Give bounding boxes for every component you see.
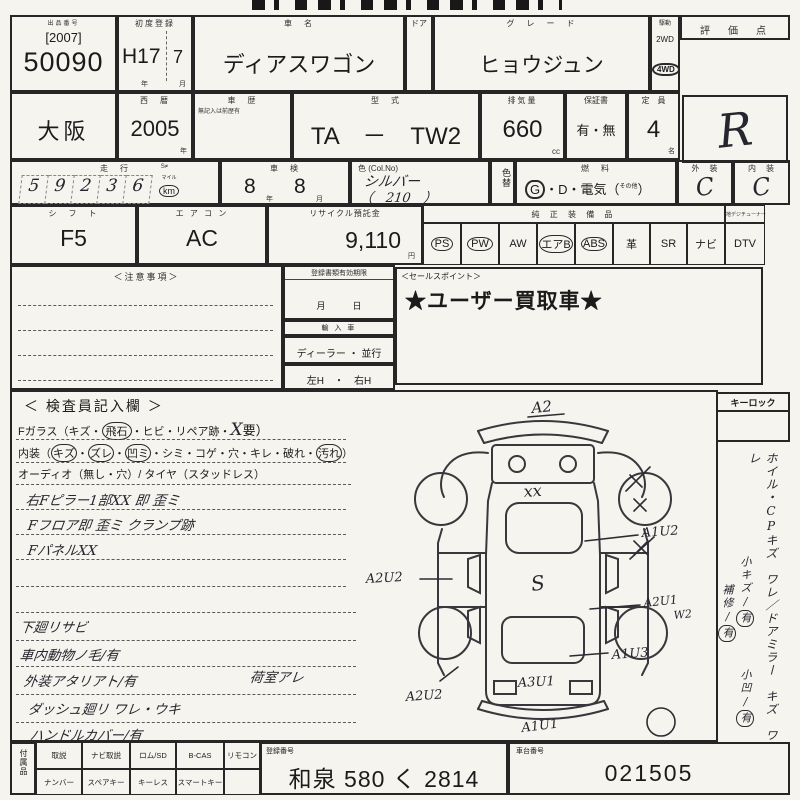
sales-value: ★ユーザー買取車★: [405, 285, 603, 315]
acc-remote: リモコン: [224, 742, 260, 769]
shaken-cell: 車 検 8 年 8 月: [220, 160, 350, 205]
fuel-other: その他: [620, 184, 638, 190]
int-c3: 凹ミ: [125, 444, 151, 462]
shaken-label: 車 検: [222, 163, 348, 174]
inspector-line: [16, 559, 346, 560]
capacity-value: 4: [629, 116, 678, 144]
aircon-cell: エ ア コ ン AC: [137, 205, 267, 265]
first-reg-cell: 初度登録 H17 7 年 月: [117, 15, 193, 92]
region-cell: 大阪: [10, 92, 117, 160]
inspector-line: [16, 612, 356, 613]
equip-aw: AW: [499, 223, 537, 265]
acc-torisetsu: 取説: [36, 742, 82, 769]
side-sub1-label: 小キズ/: [739, 556, 752, 610]
drive-4wd: 4WD: [652, 63, 680, 76]
fuel-label: 燃 料: [517, 163, 675, 174]
mark-right2: A2U1: [642, 592, 678, 610]
door-label: ドア: [407, 18, 431, 29]
lot-label: 出品番号: [12, 18, 115, 27]
audio-line: オーディオ（無し・穴）/ タイヤ（スタッドレス）: [18, 466, 265, 482]
tuner-header: 地デジチューナー: [725, 205, 765, 223]
inspector-title: ＜ 検査員記入欄 ＞: [24, 396, 164, 416]
leader-a1u2: [585, 535, 638, 541]
score-label: 評 価 点: [682, 22, 788, 37]
history-cell: 車 歴 無記入は前歴有: [193, 92, 292, 160]
lot-cell: 出品番号 [2007] 50090: [10, 15, 117, 92]
mark-center: S: [529, 570, 546, 596]
right-window-1: [606, 555, 618, 593]
side-sub1: 小キズ/有: [739, 556, 752, 627]
registration-value: 和泉 580 く 2814: [262, 760, 506, 794]
registration-cell: 登録番号 和泉 580 く 2814: [260, 742, 508, 795]
mileage-digit: 9: [45, 175, 75, 204]
shift-cell: シ フ ト F5: [10, 205, 137, 265]
shaken-month-unit: 月: [316, 194, 323, 204]
shaken-month: 8: [294, 175, 306, 199]
rear-left-wheel: [419, 607, 471, 659]
side-sub2: 小凹/有: [739, 669, 752, 727]
keylock-empty-box: [716, 412, 790, 442]
accessories-label-cell: 付属品: [10, 742, 36, 795]
side-sub3-mark: 有: [718, 625, 736, 642]
sales-label: ＜セールスポイント＞: [401, 271, 481, 282]
cab-detail-left: [509, 456, 525, 472]
front-bumper: [478, 421, 608, 431]
fuel-value: G・D・電気（その他）: [525, 179, 651, 199]
import-cell: 輸 入 車: [283, 320, 395, 336]
cargo-note: 荷室アレ: [249, 666, 305, 686]
color-code: （ 210 ）: [359, 187, 438, 206]
fuel-cell: 燃 料 G・D・電気（その他）: [515, 160, 677, 205]
handle-label: 左H ・ 右H: [285, 372, 393, 387]
mark-left2: A2U2: [404, 687, 443, 705]
history-note: 無記入は前歴有: [198, 106, 240, 115]
color-change-label: 色替: [492, 168, 513, 188]
inspector-note: 下廻リサビ: [19, 616, 89, 636]
mark-hood: xx: [523, 481, 542, 501]
west-year-cell: 西 暦 2005 年: [117, 92, 193, 160]
tuner-label: 地デジチューナー: [726, 211, 764, 218]
recycle-value: 9,110: [269, 227, 421, 254]
equip-dtv: DTV: [725, 223, 765, 265]
first-reg-month-unit: 月: [179, 79, 186, 89]
int-s1: ・: [77, 448, 88, 460]
shaken-year-unit: 年: [266, 194, 273, 204]
region-value: 大阪: [12, 114, 115, 146]
model-value: TA － TW2: [294, 116, 478, 151]
fuel-close: ）: [638, 182, 651, 197]
mileage-digit: 5: [18, 175, 49, 204]
first-reg-year-unit: 年: [141, 79, 148, 89]
mark-right1: A1U2: [640, 523, 679, 541]
accessories-label: 付属品: [18, 749, 29, 776]
int-mid: ・シミ・コゲ・穴・キレ・破れ・: [151, 448, 316, 460]
equip-abs: ABS: [575, 223, 613, 265]
drive-label: 駆動: [652, 18, 678, 27]
inspector-line: [16, 694, 356, 695]
leader-a1u3: [570, 653, 608, 656]
displacement-value: 660: [482, 116, 563, 144]
mileage-cell: 走 行 S≠ 5 9 2 3 6 マイル km: [10, 160, 220, 205]
score-header-cell: 評 価 点: [680, 15, 790, 40]
color-change-cell: 色替: [490, 160, 515, 205]
equip-sr: SR: [650, 223, 687, 265]
acc-rom-sd: ロム/SD: [130, 742, 176, 769]
capacity-unit: 名: [668, 146, 675, 156]
first-reg-label: 初度登録: [119, 18, 191, 29]
side-sub-notes: 小キズ/有 小凹/有 補修/有: [718, 556, 754, 752]
glass-middle: ・ヒビ・リペア跡・: [132, 426, 231, 438]
car-diagram: A2 xx S A1U2 A2U2 A2U1 W2 A1U3 A3U1 A2U2…: [352, 395, 722, 745]
capacity-label: 定 員: [629, 95, 678, 106]
glass-mark: X: [231, 420, 243, 440]
side-sub2-label: 小凹/: [739, 669, 752, 710]
capacity-cell: 定 員 4 名: [627, 92, 680, 160]
glass-circled: 飛石: [102, 422, 132, 440]
color-cell: 色 (Col.No) シルバー （ 210 ）: [350, 160, 490, 205]
auction-sheet: 出品番号 [2007] 50090 初度登録 H17 7 年 月 車 名 ディア…: [0, 0, 800, 800]
dealer-cell: ディーラー ・ 並行: [283, 336, 395, 364]
cropped-title-fragment: [252, 0, 562, 10]
inspector-note: Fフロア即 歪ミ クランプ跡: [27, 514, 196, 534]
lot-number: 50090: [12, 47, 115, 78]
mark-right2b: W2: [673, 607, 693, 622]
acc-bcas: B-CAS: [176, 742, 224, 769]
aircon-value: AC: [139, 225, 265, 252]
mileage-digit: 2: [71, 175, 101, 204]
inspector-line: [16, 534, 346, 535]
exterior-value: C: [677, 170, 732, 205]
inspector-line: [16, 509, 346, 510]
interior-value: C: [733, 169, 789, 204]
equip-pw: PW: [461, 223, 499, 265]
equipment-header: 純 正 装 備 品: [423, 205, 725, 223]
inspector-note: FパネルXX: [27, 539, 99, 559]
notes-line: [18, 355, 273, 356]
history-label: 車 歴: [195, 95, 290, 106]
notes-line: [18, 330, 273, 331]
tail-light-right: [570, 681, 592, 694]
shaken-year: 8: [244, 175, 256, 199]
acc-empty: [224, 769, 260, 795]
mileage-digit: 3: [97, 175, 127, 204]
grade-cell: グ レ ー ド ヒョウジュン: [433, 15, 650, 92]
displacement-unit: cc: [552, 147, 560, 156]
equip-navi: ナビ: [687, 223, 725, 265]
inspector-note: ハンドルカバー/有: [29, 724, 144, 744]
chassis-cell: 車台番号 021505: [508, 742, 790, 795]
door-cell: ドア: [405, 15, 433, 92]
displacement-cell: 排気量 660 cc: [480, 92, 565, 160]
side-sub3: 補修/有: [721, 584, 734, 642]
inspector-note: 外装アタリアト/有: [23, 670, 138, 690]
side-sub1-mark: 有: [736, 610, 754, 627]
west-year-unit: 年: [180, 146, 187, 156]
mileage-label: 走 行: [12, 163, 218, 174]
warranty-cell: 保証書 有・無: [565, 92, 627, 160]
car-name-cell: 車 名 ディアスワゴン: [193, 15, 405, 92]
notes-line: [18, 305, 273, 306]
mark-bottom: A1U1: [520, 717, 559, 737]
int-s2: ・: [114, 448, 125, 460]
windshield: [506, 503, 582, 553]
int-c1: キズ: [51, 444, 77, 462]
mileage-unit-top: マイル: [154, 174, 184, 181]
grade-label: グ レ ー ド: [435, 18, 648, 29]
diagram-labels: A2 xx S A1U2 A2U2 A2U1 W2 A1U3 A3U1 A2U2…: [364, 397, 692, 736]
equip-pw-label: PW: [467, 237, 493, 251]
grade-value: ヒョウジュン: [435, 49, 648, 79]
fuel-g: G: [525, 180, 545, 199]
mileage-unit-badge: マイル km: [154, 174, 184, 199]
inspector-line: [16, 484, 351, 485]
validity-cell: 登録書類有効期限 月 日: [283, 265, 395, 320]
drive-cell: 駆動 2WD 4WD: [650, 15, 680, 92]
sales-box: ＜セールスポイント＞ ★ユーザー買取車★: [395, 267, 763, 385]
front-bumper-inner: [484, 435, 602, 444]
notes-box: ＜注意事項＞: [10, 265, 283, 390]
interior-cell: 内 装 C: [733, 160, 790, 205]
mileage-digits: 5 9 2 3 6: [20, 175, 151, 204]
cab-roof: [492, 445, 594, 483]
inspector-line: [16, 439, 346, 440]
notes-label: ＜注意事項＞: [12, 270, 281, 283]
acc-keyless: キーレス: [130, 769, 176, 795]
mark-left1: A2U2: [364, 570, 403, 587]
keylock-label: キーロック: [718, 396, 788, 409]
model-label: 型 式: [294, 95, 478, 106]
score-value: R: [681, 98, 788, 162]
import-label: 輸 入 車: [285, 323, 393, 333]
first-reg-divider: [166, 31, 167, 81]
tail-light-left: [494, 681, 516, 694]
mark-right3: A1U3: [610, 645, 649, 663]
inspector-line: [16, 586, 346, 587]
first-reg-month: 7: [173, 47, 183, 68]
mileage-digit: 6: [123, 175, 153, 204]
equip-aw-label: AW: [509, 238, 526, 250]
side-sub2-mark: 有: [736, 710, 754, 727]
inspector-note: 右Fピラー1部XX 即 歪ミ: [25, 489, 181, 509]
car-name-value: ディアスワゴン: [195, 47, 403, 79]
equip-leather: 革: [613, 223, 650, 265]
validity-label: 登録書類有効期限: [285, 268, 393, 280]
shift-label: シ フ ト: [12, 208, 135, 219]
acc-sparekey: スペアキー: [82, 769, 130, 795]
model-cell: 型 式 TA － TW2: [292, 92, 480, 160]
equip-abs-label: ABS: [581, 237, 607, 251]
cab-detail-right: [560, 456, 576, 472]
mark-front: A2: [529, 397, 553, 417]
left-rail: [438, 529, 444, 675]
mark-rear: A3U1: [516, 674, 555, 691]
warranty-label: 保証書: [567, 95, 625, 106]
warranty-value: 有・無: [567, 120, 625, 139]
acc-navi-torisetsu: ナビ取説: [82, 742, 130, 769]
interior-line: 内装（キズ・ズレ・凹ミ・シミ・コゲ・穴・キレ・破れ・汚れ）: [18, 444, 353, 462]
equip-airbag-label: エアB: [539, 235, 572, 253]
lot-year: [2007]: [12, 30, 115, 45]
glass-line: Fガラス（キズ・飛石・ヒビ・リペア跡・X要）: [18, 420, 269, 440]
equipment-row: PS PW AW エアB ABS 革 SR ナビ DTV: [423, 223, 765, 265]
first-reg-year: H17: [122, 45, 161, 69]
fuel-rest: ・D・電気（: [545, 182, 619, 197]
equip-airbag: エアB: [537, 223, 575, 265]
inspector-line: [16, 462, 346, 463]
west-year-label: 西 暦: [119, 95, 191, 106]
left-window-1: [468, 555, 480, 593]
displacement-label: 排気量: [482, 95, 563, 106]
keylock-box: キーロック: [716, 392, 790, 412]
chassis-label: 車台番号: [516, 746, 544, 756]
handle-cell: 左H ・ 右H: [283, 364, 395, 390]
recycle-cell: リサイクル預託金 9,110 円: [267, 205, 423, 265]
shift-value: F5: [12, 225, 135, 252]
west-year-value: 2005: [119, 116, 191, 142]
inspector-line: [16, 640, 356, 641]
validity-units: 月 日: [285, 299, 393, 312]
equip-leather-label: 革: [626, 236, 637, 252]
equip-ps-label: PS: [431, 237, 454, 251]
car-name-label: 車 名: [195, 18, 403, 29]
recycle-label: リサイクル預託金: [269, 208, 421, 219]
equip-dtv-label: DTV: [734, 238, 756, 250]
drive-4wd-wrap: 4WD: [652, 63, 678, 76]
glass-suffix: 要）: [243, 423, 269, 438]
x-mark: [634, 499, 646, 511]
chassis-value: 021505: [510, 760, 788, 787]
exterior-cell: 外 装 C: [677, 160, 733, 205]
acc-smartkey: スマートキー: [176, 769, 224, 795]
drive-2wd: 2WD: [652, 35, 678, 44]
mileage-flag: S≠: [161, 164, 168, 170]
int-prefix: 内装（: [18, 448, 51, 460]
aircon-label: エ ア コ ン: [139, 208, 265, 219]
inspector-note: 車内動物ノ毛/有: [19, 644, 121, 664]
empty-circle: [647, 708, 675, 736]
glass-prefix: Fガラス（キズ・: [18, 426, 102, 438]
side-sub3-label: 補修/: [721, 584, 734, 625]
inspector-note: ダッシュ廻リ ワレ・ウキ: [27, 698, 182, 718]
registration-label: 登録番号: [266, 746, 294, 756]
equip-navi-label: ナビ: [695, 236, 717, 252]
dealer-label: ディーラー ・ 並行: [285, 345, 393, 360]
equip-ps: PS: [423, 223, 461, 265]
int-c2: ズレ: [88, 444, 114, 462]
inspector-line: [16, 722, 356, 723]
equipment-label: 純 正 装 備 品: [424, 209, 724, 220]
score-box: R: [682, 95, 788, 163]
recycle-unit: 円: [408, 251, 415, 261]
notes-line: [18, 380, 273, 381]
mileage-unit: km: [159, 185, 179, 197]
int-c4: 汚れ: [316, 444, 342, 462]
equip-sr-label: SR: [661, 238, 676, 250]
acc-number: ナンバー: [36, 769, 82, 795]
